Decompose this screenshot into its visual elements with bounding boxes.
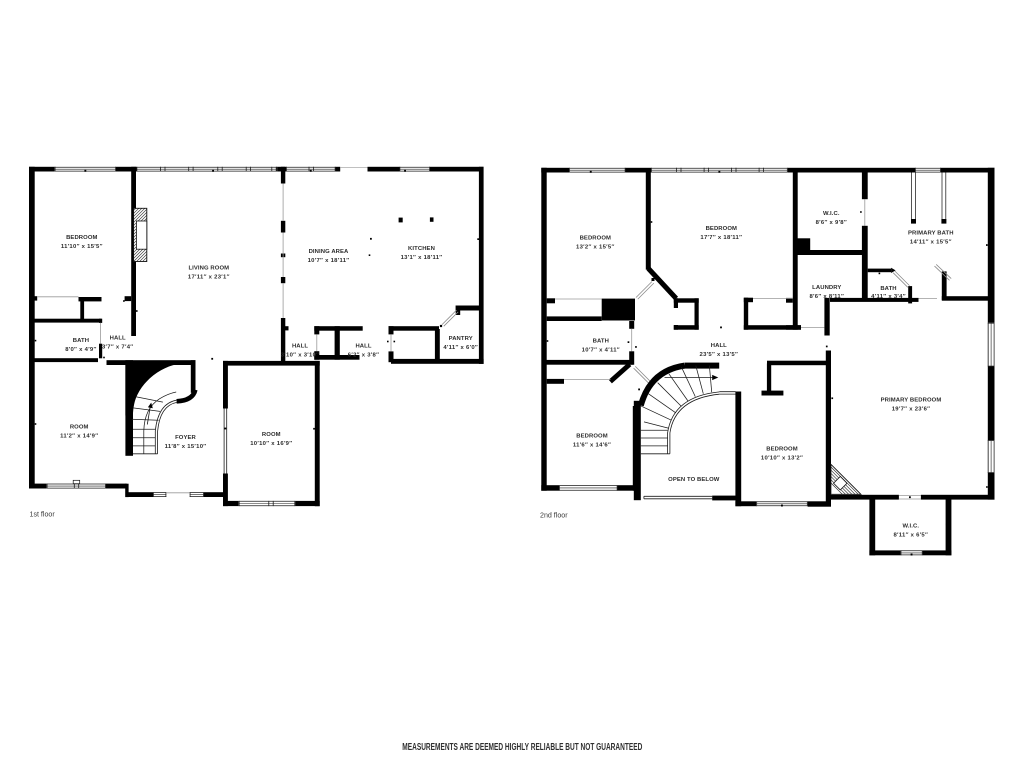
svg-text:8′11″ x 6′5″: 8′11″ x 6′5″ — [893, 533, 928, 539]
svg-text:HALL: HALL — [355, 344, 371, 350]
svg-text:PANTRY: PANTRY — [449, 336, 473, 342]
svg-text:10′7″ x 4′11″: 10′7″ x 4′11″ — [582, 348, 620, 354]
svg-text:BEDROOM: BEDROOM — [576, 434, 607, 440]
svg-text:OPEN TO BELOW: OPEN TO BELOW — [668, 477, 720, 483]
svg-text:BEDROOM: BEDROOM — [706, 226, 737, 232]
svg-text:19′7″ x 23′6″: 19′7″ x 23′6″ — [892, 407, 931, 413]
svg-text:LAUNDRY: LAUNDRY — [812, 285, 841, 291]
svg-text:BATH: BATH — [73, 338, 89, 344]
svg-text:6′2″ x 3′8″: 6′2″ x 3′8″ — [348, 353, 379, 359]
svg-text:8′0″ x 4′9″: 8′0″ x 4′9″ — [65, 347, 96, 353]
svg-text:BEDROOM: BEDROOM — [580, 236, 611, 242]
svg-text:LIVING ROOM: LIVING ROOM — [188, 266, 229, 272]
svg-text:11′2″ x 14′9″: 11′2″ x 14′9″ — [60, 434, 98, 440]
svg-text:14′11″ x 15′5″: 14′11″ x 15′5″ — [910, 240, 952, 246]
svg-text:KITCHEN: KITCHEN — [408, 246, 435, 252]
svg-text:BATH: BATH — [593, 339, 609, 345]
svg-text:PRIMARY BEDROOM: PRIMARY BEDROOM — [881, 398, 942, 404]
svg-text:W.I.C.: W.I.C. — [823, 211, 840, 217]
svg-text:13′2″ x 15′5″: 13′2″ x 15′5″ — [576, 245, 615, 251]
svg-text:17′7″ x 18′11″: 17′7″ x 18′11″ — [700, 235, 742, 241]
svg-text:11′8″ x 15′10″: 11′8″ x 15′10″ — [165, 444, 207, 450]
svg-text:3′10″ x 3′10″: 3′10″ x 3′10″ — [281, 353, 320, 359]
svg-text:1st floor: 1st floor — [30, 511, 56, 519]
svg-text:FOYER: FOYER — [175, 435, 196, 441]
svg-text:MEASUREMENTS ARE DEEMED HIGHLY: MEASUREMENTS ARE DEEMED HIGHLY RELIABLE … — [402, 742, 642, 753]
svg-text:13′1″ x 18′11″: 13′1″ x 18′11″ — [401, 255, 443, 261]
svg-text:17′11″ x 23′1″: 17′11″ x 23′1″ — [188, 275, 230, 281]
svg-text:4′11″ x 3′4″: 4′11″ x 3′4″ — [871, 294, 906, 300]
svg-text:HALL: HALL — [110, 336, 126, 342]
svg-text:ROOM: ROOM — [262, 432, 281, 438]
svg-text:8′6″ x 9′8″: 8′6″ x 9′8″ — [816, 220, 847, 226]
svg-text:10′10″ x 16′9″: 10′10″ x 16′9″ — [250, 441, 292, 447]
svg-text:ROOM: ROOM — [70, 425, 89, 431]
svg-text:HALL: HALL — [711, 343, 727, 349]
svg-text:PRIMARY BATH: PRIMARY BATH — [908, 231, 954, 237]
svg-text:10′10″ x 13′2″: 10′10″ x 13′2″ — [761, 456, 803, 462]
svg-text:23′5″ x 13′5″: 23′5″ x 13′5″ — [700, 352, 739, 358]
svg-text:DINING AREA: DINING AREA — [309, 249, 349, 255]
svg-text:2nd floor: 2nd floor — [540, 512, 568, 520]
svg-text:4′11″ x 6′0″: 4′11″ x 6′0″ — [443, 345, 478, 351]
svg-text:BEDROOM: BEDROOM — [766, 447, 797, 453]
svg-text:10′7″ x 18′11″: 10′7″ x 18′11″ — [308, 258, 350, 264]
svg-text:HALL: HALL — [292, 344, 308, 350]
svg-text:BEDROOM: BEDROOM — [66, 235, 97, 241]
svg-text:3′7″ x 7′4″: 3′7″ x 7′4″ — [102, 345, 133, 351]
svg-text:BATH: BATH — [880, 286, 896, 292]
svg-text:W.I.C.: W.I.C. — [902, 524, 919, 530]
svg-text:8′6″ x 8′11″: 8′6″ x 8′11″ — [809, 294, 844, 300]
svg-text:11′10″ x 15′5″: 11′10″ x 15′5″ — [61, 244, 103, 250]
svg-text:11′6″ x 14′6″: 11′6″ x 14′6″ — [573, 443, 611, 449]
